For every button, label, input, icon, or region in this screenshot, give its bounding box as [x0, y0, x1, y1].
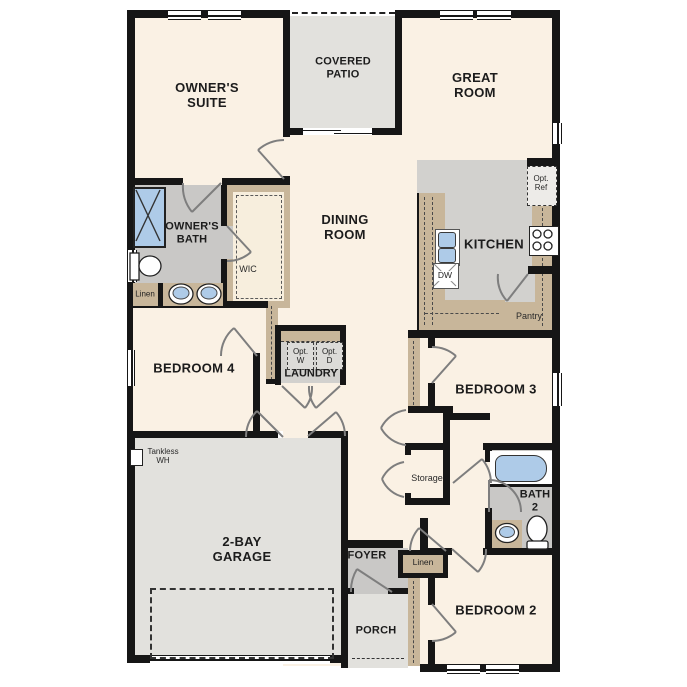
wall — [372, 128, 402, 135]
wall — [483, 548, 560, 555]
wic-shelf-dashes — [236, 195, 282, 299]
porch-label: PORCH — [356, 625, 397, 638]
bath2-vanity — [492, 520, 522, 548]
kitchen-label: KITCHEN — [464, 238, 524, 253]
sliding-door-panel — [303, 130, 341, 132]
wall — [405, 493, 411, 505]
opt-dryer-label: Opt. D — [322, 347, 337, 365]
wall — [528, 266, 560, 274]
opt-washer-box: Opt. W — [287, 342, 314, 370]
wall — [348, 588, 354, 594]
strip-a-dash — [271, 306, 272, 380]
wall — [283, 128, 303, 135]
tankless-water-heater — [130, 449, 143, 466]
wall — [405, 498, 450, 505]
hall-wall-strip-c — [408, 578, 420, 666]
owners-bath-label: OWNER'S BATH — [165, 220, 219, 245]
window — [447, 664, 480, 674]
bath2-label: BATH 2 — [520, 488, 551, 513]
window — [168, 10, 201, 20]
garage-label: 2-BAY GARAGE — [213, 535, 272, 565]
wall — [527, 158, 560, 166]
window — [552, 373, 562, 406]
strip-b-dash — [413, 341, 414, 405]
cabinet-dash-4 — [425, 313, 499, 314]
storage-label: Storage — [411, 473, 443, 483]
sliding-door-panel — [334, 133, 372, 135]
great-room-label: GREAT ROOM — [452, 71, 498, 101]
dining-room-label: DINING ROOM — [321, 213, 368, 243]
patio-roof-dash — [292, 12, 395, 14]
wall — [283, 10, 290, 137]
bathtub — [495, 455, 547, 482]
floor-plan: Opt. W Opt. D — [0, 0, 687, 687]
linen-hall-label: Linen — [413, 558, 434, 568]
kitchen-bottom-counter — [417, 300, 505, 330]
wall — [428, 336, 435, 348]
owners-suite-label: OWNER'S SUITE — [175, 81, 239, 111]
kitchen-sink-bowl — [438, 232, 456, 248]
wall — [253, 353, 260, 431]
bedroom2-label: BEDROOM 2 — [455, 604, 536, 619]
cabinet-dash-2 — [432, 197, 433, 325]
bedroom3-label: BEDROOM 3 — [455, 383, 536, 398]
counter-edge-line — [417, 193, 419, 330]
vanity-counter — [163, 283, 223, 306]
bedroom4-label: BEDROOM 4 — [153, 362, 234, 377]
pantry-label: Pantry — [516, 311, 542, 321]
garage-door-line — [150, 659, 330, 661]
wic-label: WIC — [239, 264, 257, 274]
wall — [341, 540, 403, 548]
opt-washer-label: Opt. W — [293, 347, 308, 365]
wall — [420, 518, 428, 552]
wall — [308, 431, 348, 438]
wall — [221, 185, 227, 226]
dw-label: DW — [437, 271, 453, 281]
wall — [405, 443, 450, 450]
wall — [408, 406, 453, 413]
wall — [388, 588, 408, 594]
hall-wall-strip-b — [408, 338, 420, 408]
wall — [483, 443, 560, 450]
wall — [428, 578, 435, 605]
opt-ref-label: Opt. Ref — [533, 175, 548, 193]
wall — [127, 431, 278, 438]
window — [477, 10, 511, 20]
window — [208, 10, 241, 20]
kitchen-sink-bowl — [438, 248, 456, 263]
foyer-label: FOYER — [348, 550, 387, 563]
laundry-shelf — [281, 331, 340, 342]
window — [486, 664, 519, 674]
wall — [443, 413, 490, 420]
window — [127, 350, 135, 386]
wall — [127, 438, 135, 663]
window — [127, 250, 137, 282]
wall — [428, 640, 435, 672]
laundry-label: LAUNDRY — [284, 368, 337, 381]
opt-dryer-box: Opt. D — [316, 342, 343, 370]
window — [440, 10, 473, 20]
linen-bath-label: Linen — [135, 289, 155, 298]
wall — [127, 178, 183, 185]
wall — [222, 178, 290, 185]
wall — [395, 10, 402, 135]
cooktop — [529, 226, 559, 256]
shower — [133, 187, 166, 248]
wall — [552, 10, 560, 672]
tankless-wh-label: Tankless WH — [147, 448, 178, 466]
pantry-nook — [505, 272, 535, 302]
window — [552, 123, 562, 144]
cabinet-dash-1 — [424, 197, 425, 325]
strip-c-dash — [413, 581, 414, 663]
wic-door-opening — [221, 226, 233, 259]
wall — [405, 443, 411, 455]
covered-patio-label: COVERED PATIO — [315, 55, 371, 80]
garage-parking-dash — [150, 588, 334, 659]
porch-edge-dash — [352, 658, 404, 659]
wall — [443, 413, 450, 505]
